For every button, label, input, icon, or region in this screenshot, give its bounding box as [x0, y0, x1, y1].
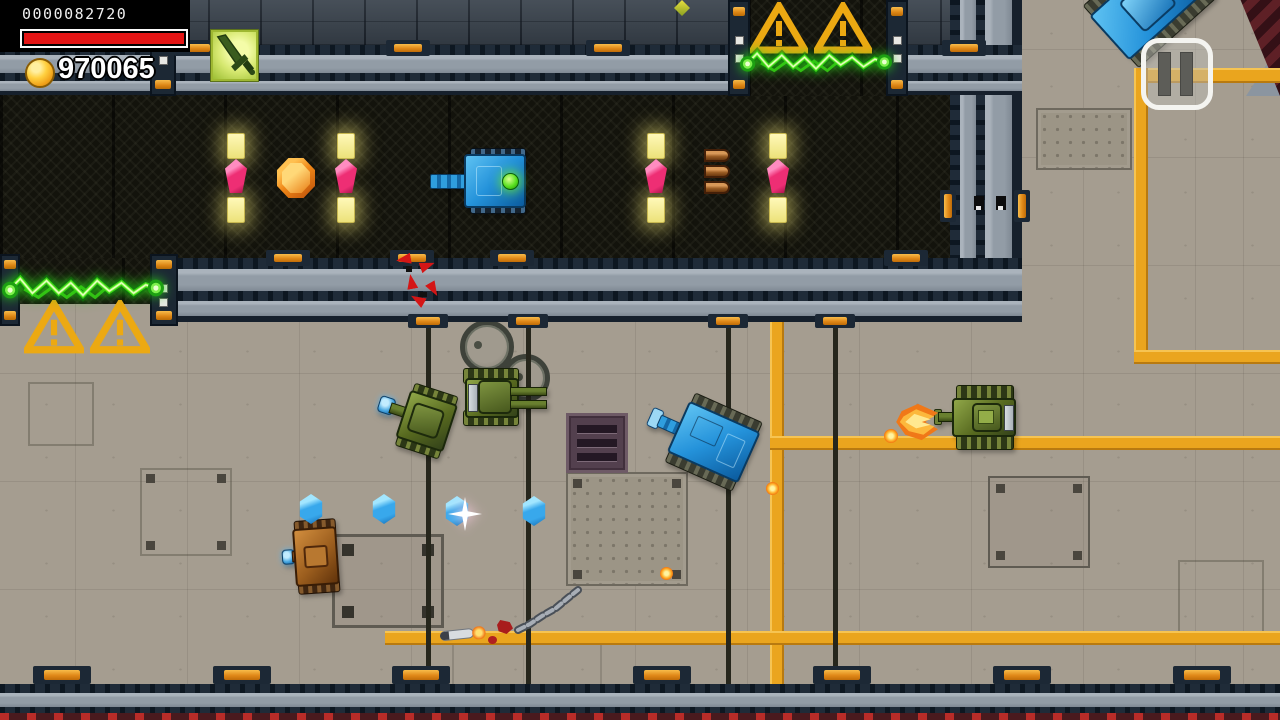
tank-power-core [502, 173, 519, 190]
tank-hatch [303, 545, 328, 569]
corridor-light [227, 197, 245, 223]
wall-edge [178, 316, 1022, 322]
tank-barrel [430, 174, 466, 189]
wall-clip [940, 190, 956, 222]
power-cable [426, 322, 431, 684]
projectile [660, 567, 673, 580]
green-tank-firing [934, 381, 1016, 453]
hazard-strip [0, 713, 1280, 720]
cable-bracket [708, 314, 748, 328]
corridor-light [769, 133, 787, 159]
wall-clip [813, 666, 871, 684]
tank-turret [478, 380, 512, 414]
muzzle-flash [896, 402, 940, 442]
wall-beam [178, 301, 1022, 316]
cable-hook [996, 196, 1006, 210]
corridor-light [647, 133, 665, 159]
floor-plate-outline [140, 468, 232, 556]
vent-grate [566, 413, 628, 473]
green-tank-double-barrel [462, 366, 548, 428]
floor-plate-outline [28, 382, 94, 446]
wall-clip [1014, 190, 1030, 222]
wall-clip [942, 40, 986, 56]
tank-rack [468, 384, 478, 412]
corridor-light [337, 133, 355, 159]
broken-track-chain [512, 582, 584, 634]
power-cable [833, 322, 838, 684]
blue-gem [521, 496, 547, 526]
wall-clip [586, 40, 630, 56]
pause-icon [1180, 52, 1193, 96]
corridor-light [337, 197, 355, 223]
wall-clip [884, 250, 928, 266]
floor-plate-bolted [988, 476, 1090, 568]
yellow-pipe-horizontal [770, 436, 1280, 450]
blue-gem [371, 494, 397, 524]
power-cable [726, 322, 731, 684]
wall-beam [888, 81, 1022, 91]
projectile [766, 482, 779, 495]
debris-bit [420, 292, 427, 297]
wall-beam [0, 693, 1280, 707]
wall-edge [888, 91, 1022, 95]
cable-hook [974, 196, 984, 210]
coin-counter: 970065 [58, 53, 155, 86]
brown-tank [279, 518, 340, 596]
orange-gem-coin [277, 158, 315, 198]
bullet-pickup [704, 149, 730, 162]
wall-edge [0, 91, 748, 95]
pause-icon [1158, 52, 1171, 96]
wall-clip [213, 666, 271, 684]
projectile [884, 429, 898, 443]
cable-bracket [815, 314, 855, 328]
sword-icon [213, 32, 256, 79]
health-bar-fill [24, 33, 184, 44]
wall-clip [1173, 666, 1231, 684]
electric-fence [2, 264, 164, 312]
sword-powerup [211, 30, 258, 81]
red-splatter [488, 636, 497, 644]
score-counter: 0000082720 [22, 5, 127, 23]
wall-seam [888, 73, 1022, 81]
electric-fence [740, 40, 892, 84]
gem-sparkle [448, 497, 482, 531]
tank-panel [476, 166, 502, 196]
floor-plate-textured [1036, 108, 1132, 170]
wall-seam [178, 291, 1022, 301]
tank-barrel [510, 387, 547, 396]
wall-clip [33, 666, 91, 684]
cable-bracket [408, 314, 448, 328]
bullet-pickup [704, 165, 730, 178]
corridor-light [769, 197, 787, 223]
yellow-pipe-horizontal [1134, 350, 1280, 364]
wall-clip [392, 666, 450, 684]
cable-bracket [508, 314, 548, 328]
wall-clip [993, 666, 1051, 684]
tank-hatch [978, 410, 994, 424]
pause-button[interactable] [1141, 38, 1213, 110]
corridor-blue-tank [430, 148, 530, 214]
tank-barrel [510, 400, 547, 409]
corridor-light [647, 197, 665, 223]
wall-clip [386, 40, 430, 56]
yellow-pipe-vertical [1134, 68, 1148, 364]
bullet-pickup [704, 181, 730, 194]
wall-clip [633, 666, 691, 684]
health-bar [20, 29, 188, 48]
coin-icon [25, 58, 55, 88]
wall-beam [178, 269, 1022, 291]
wall-clip [266, 250, 310, 266]
wall-edge [0, 684, 1280, 693]
debris-bit [406, 266, 412, 272]
tank-rack [1004, 405, 1014, 431]
wall-beam [888, 55, 1022, 73]
green-tank-left [367, 374, 460, 462]
corridor-light [227, 133, 245, 159]
wall-clip [490, 250, 534, 266]
game-scene[interactable]: 0000082720 970065 [0, 0, 1280, 720]
